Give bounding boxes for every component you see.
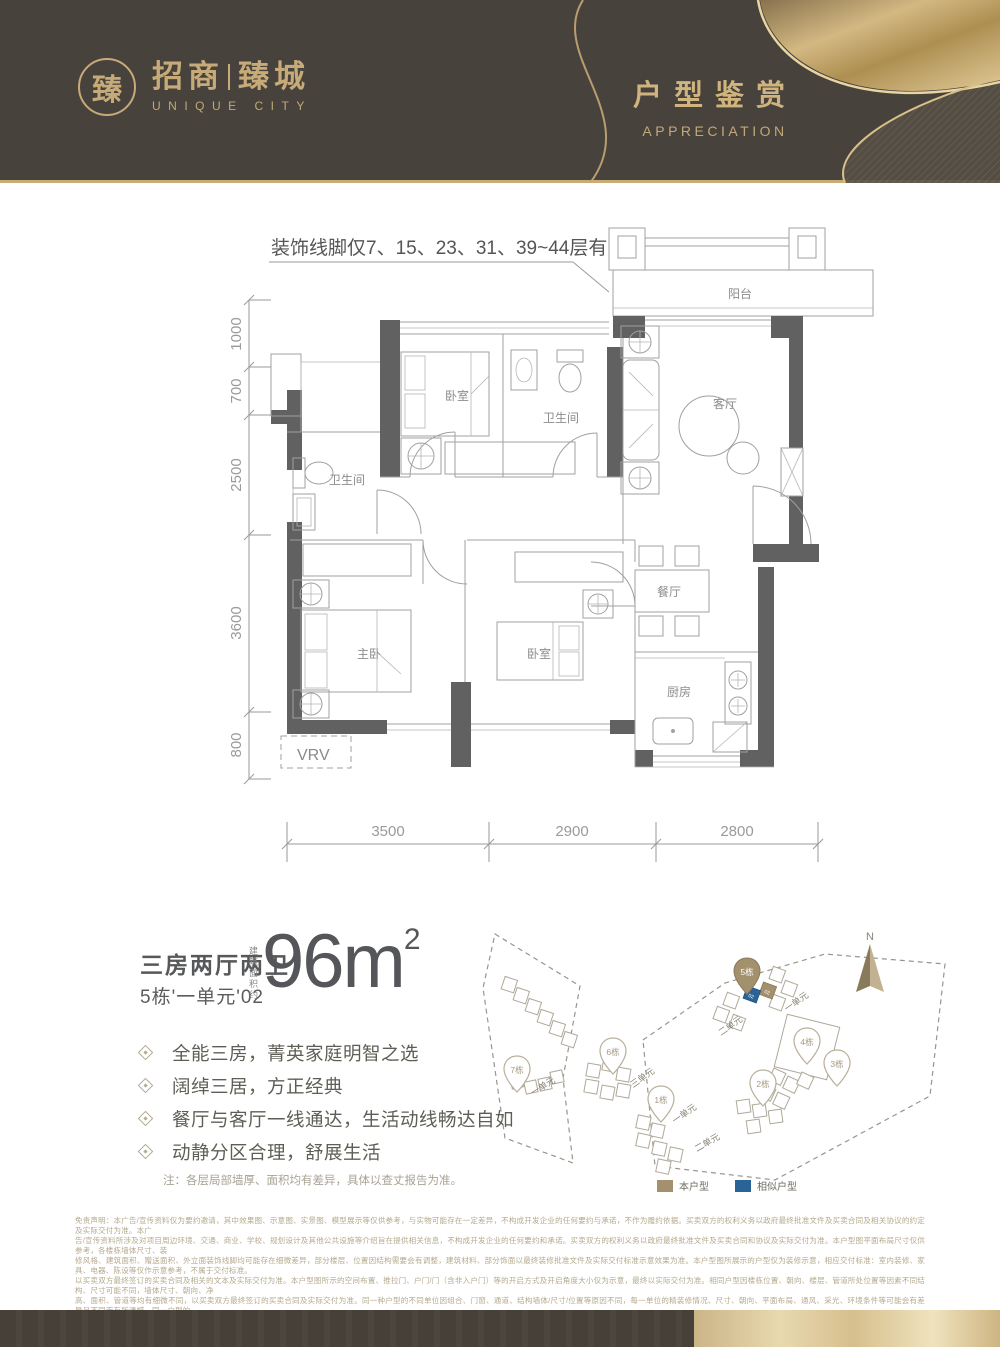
legend-swatch-this-unit bbox=[657, 1180, 673, 1192]
diamond-bullet-icon bbox=[138, 1111, 154, 1127]
kitchen-fixtures bbox=[635, 658, 751, 752]
area-value: 96m2 bbox=[262, 918, 421, 1005]
diamond-bullet-icon bbox=[138, 1144, 154, 1160]
feature-list: 全能三房，菁英家庭明智之选 阔绰三居，方正经典 餐厅与客厅一线通达，生活动线畅达… bbox=[140, 1036, 500, 1168]
svg-text:2栋: 2栋 bbox=[756, 1079, 770, 1089]
brand-name-en: UNIQUE CITY bbox=[152, 99, 312, 113]
vrv-label: VRV bbox=[297, 747, 330, 764]
bedroom-mid-furniture bbox=[497, 552, 623, 680]
flyer-page: 臻 招商 臻城 UNIQUE CITY 户型鉴赏 APPRECIATION 装饰… bbox=[0, 0, 1000, 1347]
gold-curve-line bbox=[575, 0, 606, 183]
pin-building-2: 2栋 bbox=[750, 1070, 776, 1106]
disclaimer-line: 修风格、建筑面积、赠送面积、外立面装饰线脚均可能存在细微差异，部分楼层、位置因结… bbox=[75, 1256, 925, 1276]
dim-left-800: 800 bbox=[228, 732, 245, 757]
unit-number: 5栋'一单元'02 bbox=[140, 982, 264, 1009]
brand-name-right: 臻城 bbox=[238, 61, 310, 92]
page-title: 户型鉴赏 bbox=[610, 72, 820, 114]
legend-swatch-similar-unit bbox=[735, 1180, 751, 1192]
disclaimer-line: 免责声明：本广告/宣传资料仅为要约邀请，其中效果图、示意图、实景图、模型展示等仅… bbox=[75, 1216, 925, 1236]
pin-building-4: 4栋 bbox=[794, 1028, 820, 1064]
room-label-bedroom-top: 卧室 bbox=[445, 388, 469, 403]
brand-logo: 臻 招商 臻城 UNIQUE CITY bbox=[78, 58, 312, 116]
disclaimer-line: 以买卖双方最终签订的买卖合同及相关的文本及实际交付为准。本户型图所示的空间布置、… bbox=[75, 1276, 925, 1296]
north-arrow-icon: N bbox=[856, 931, 884, 992]
svg-text:3栋: 3栋 bbox=[830, 1059, 844, 1069]
page-title-en: APPRECIATION bbox=[610, 123, 820, 139]
footer-bar bbox=[0, 1310, 1000, 1347]
room-label-dining: 餐厅 bbox=[657, 584, 681, 599]
site-plan: 7栋 一单元 6栋 三单元 02 02 bbox=[475, 928, 1000, 1220]
svg-text:6栋: 6栋 bbox=[606, 1047, 620, 1057]
room-label-bath-mid: 卫生间 bbox=[543, 411, 579, 425]
north-label: N bbox=[866, 931, 874, 943]
legend-label-similar-unit: 相似户型 bbox=[757, 1180, 797, 1193]
unit-label-b1-top: 一单元 bbox=[670, 1101, 698, 1126]
feature-text: 餐厅与客厅一线通达，生活动线畅达自如 bbox=[172, 1106, 514, 1132]
svg-text:5栋: 5栋 bbox=[740, 967, 754, 977]
structural-walls bbox=[271, 316, 819, 767]
dim-left-700: 700 bbox=[228, 378, 245, 403]
svg-text:1栋: 1栋 bbox=[654, 1095, 668, 1105]
feature-item: 全能三房，菁英家庭明智之选 bbox=[140, 1036, 500, 1069]
seal-logo-icon: 臻 bbox=[78, 58, 136, 116]
unit-label-parcel-left: 一单元 bbox=[528, 1074, 557, 1098]
dim-bottom-3500: 3500 bbox=[371, 823, 404, 840]
header: 臻 招商 臻城 UNIQUE CITY 户型鉴赏 APPRECIATION bbox=[0, 0, 1000, 183]
feature-item: 阔绰三居，方正经典 bbox=[140, 1069, 500, 1102]
dim-bottom-2800: 2800 bbox=[720, 823, 753, 840]
area-label: 建筑面积约 bbox=[247, 946, 260, 1010]
brand-divider bbox=[228, 64, 230, 90]
disclaimer-line: 告/宣传资料所涉及对项目周边环境、交通、商业、学校、规划设计及其他公共设施等介绍… bbox=[75, 1236, 925, 1256]
site-legend: 本户型 相似户型 bbox=[657, 1180, 797, 1193]
feature-text: 阔绰三居，方正经典 bbox=[172, 1073, 343, 1099]
bathroom-mid-fixtures bbox=[511, 350, 583, 392]
balcony-structure bbox=[609, 228, 873, 316]
measurement-note: 注：各层局部墙厚、面积均有差异，具体以查丈报告为准。 bbox=[163, 1172, 462, 1188]
legend-label-this-unit: 本户型 bbox=[679, 1180, 709, 1193]
site-parcel-left bbox=[483, 934, 580, 1163]
pin-building-5: 5栋 bbox=[734, 958, 760, 994]
room-label-living: 客厅 bbox=[713, 396, 737, 411]
dim-left-2500: 2500 bbox=[228, 458, 245, 491]
feature-text: 全能三房，菁英家庭明智之选 bbox=[172, 1040, 419, 1066]
room-label-bath-left: 卫生间 bbox=[329, 473, 365, 487]
dimension-chain-left bbox=[244, 295, 271, 784]
master-bedroom-furniture bbox=[293, 544, 411, 718]
door-swings bbox=[377, 432, 811, 606]
floor-plan: 装饰线脚仅7、15、23、31、39~44层有 阳台 bbox=[205, 222, 895, 922]
dim-bottom-2900: 2900 bbox=[555, 823, 588, 840]
room-label-bedroom-mid: 卧室 bbox=[527, 646, 551, 661]
unit-label-b1-bottom: 二单元 bbox=[693, 1131, 722, 1154]
dim-left-3600: 3600 bbox=[228, 606, 245, 639]
unit-label-b6: 三单元 bbox=[628, 1065, 656, 1090]
svg-text:7栋: 7栋 bbox=[510, 1065, 524, 1075]
diamond-bullet-icon bbox=[138, 1078, 154, 1094]
footer-gold-block bbox=[694, 1310, 1000, 1347]
feature-text: 动静分区合理，舒展生活 bbox=[172, 1139, 381, 1165]
svg-text:4栋: 4栋 bbox=[800, 1037, 814, 1047]
area-exponent: 2 bbox=[404, 923, 421, 956]
area-number: 96m bbox=[262, 919, 404, 1004]
brand-text-block: 招商 臻城 UNIQUE CITY bbox=[152, 61, 312, 113]
seal-char: 臻 bbox=[92, 65, 122, 109]
feature-item: 动静分区合理，舒展生活 bbox=[140, 1135, 500, 1168]
room-label-balcony: 阳台 bbox=[728, 286, 752, 301]
room-label-kitchen: 厨房 bbox=[667, 684, 691, 699]
pin-building-3: 3栋 bbox=[824, 1050, 850, 1086]
brand-name-left: 招商 bbox=[152, 61, 224, 92]
feature-item: 餐厅与客厅一线通达，生活动线畅达自如 bbox=[140, 1102, 500, 1135]
diamond-bullet-icon bbox=[138, 1045, 154, 1061]
page-title-block: 户型鉴赏 APPRECIATION bbox=[610, 72, 820, 139]
annotation-leader bbox=[573, 262, 609, 292]
living-room-furniture bbox=[621, 326, 803, 496]
decor-line-annotation: 装饰线脚仅7、15、23、31、39~44层有 bbox=[271, 237, 607, 259]
room-label-master: 主卧 bbox=[357, 647, 381, 661]
dim-left-1000: 1000 bbox=[228, 317, 245, 350]
footer-dark-block bbox=[0, 1310, 694, 1347]
